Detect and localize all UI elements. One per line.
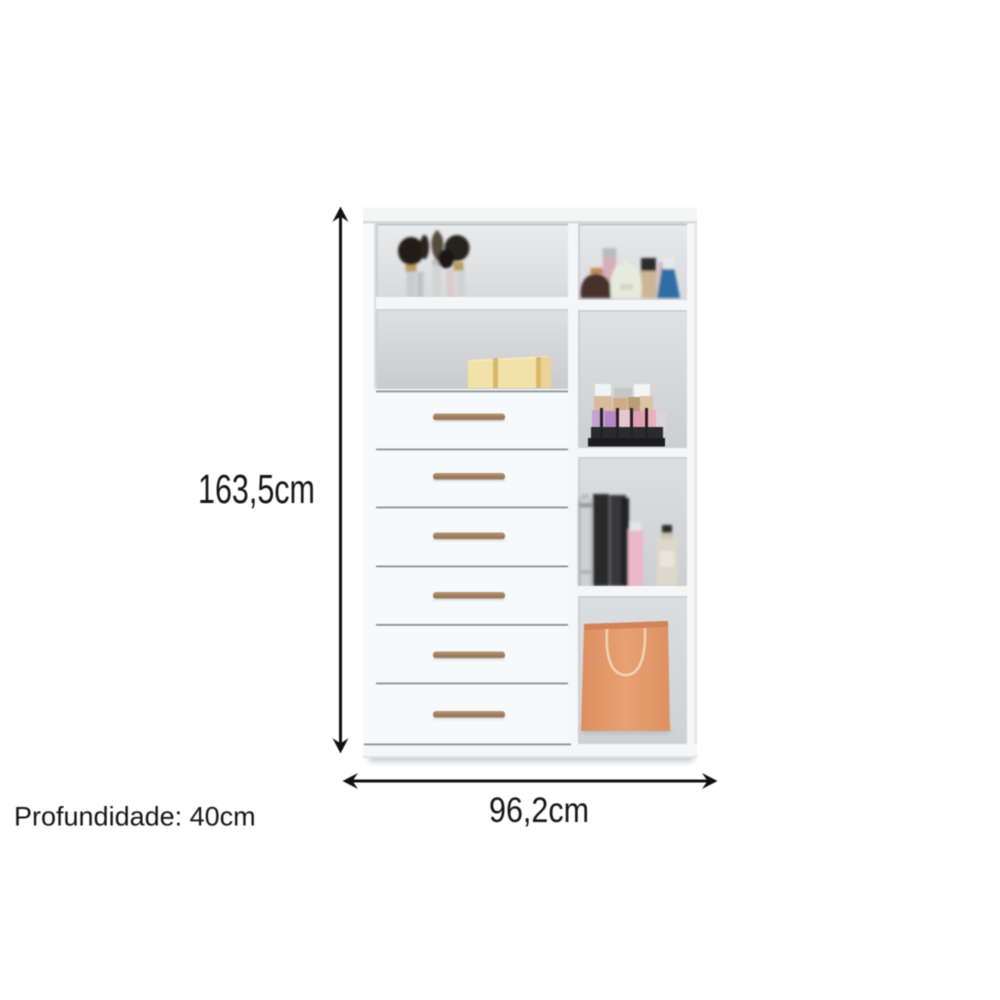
svg-text:Profundidade: 40cm: Profundidade: 40cm xyxy=(14,802,256,832)
svg-text:163,5cm: 163,5cm xyxy=(198,467,315,512)
svg-text:96,2cm: 96,2cm xyxy=(489,790,589,829)
